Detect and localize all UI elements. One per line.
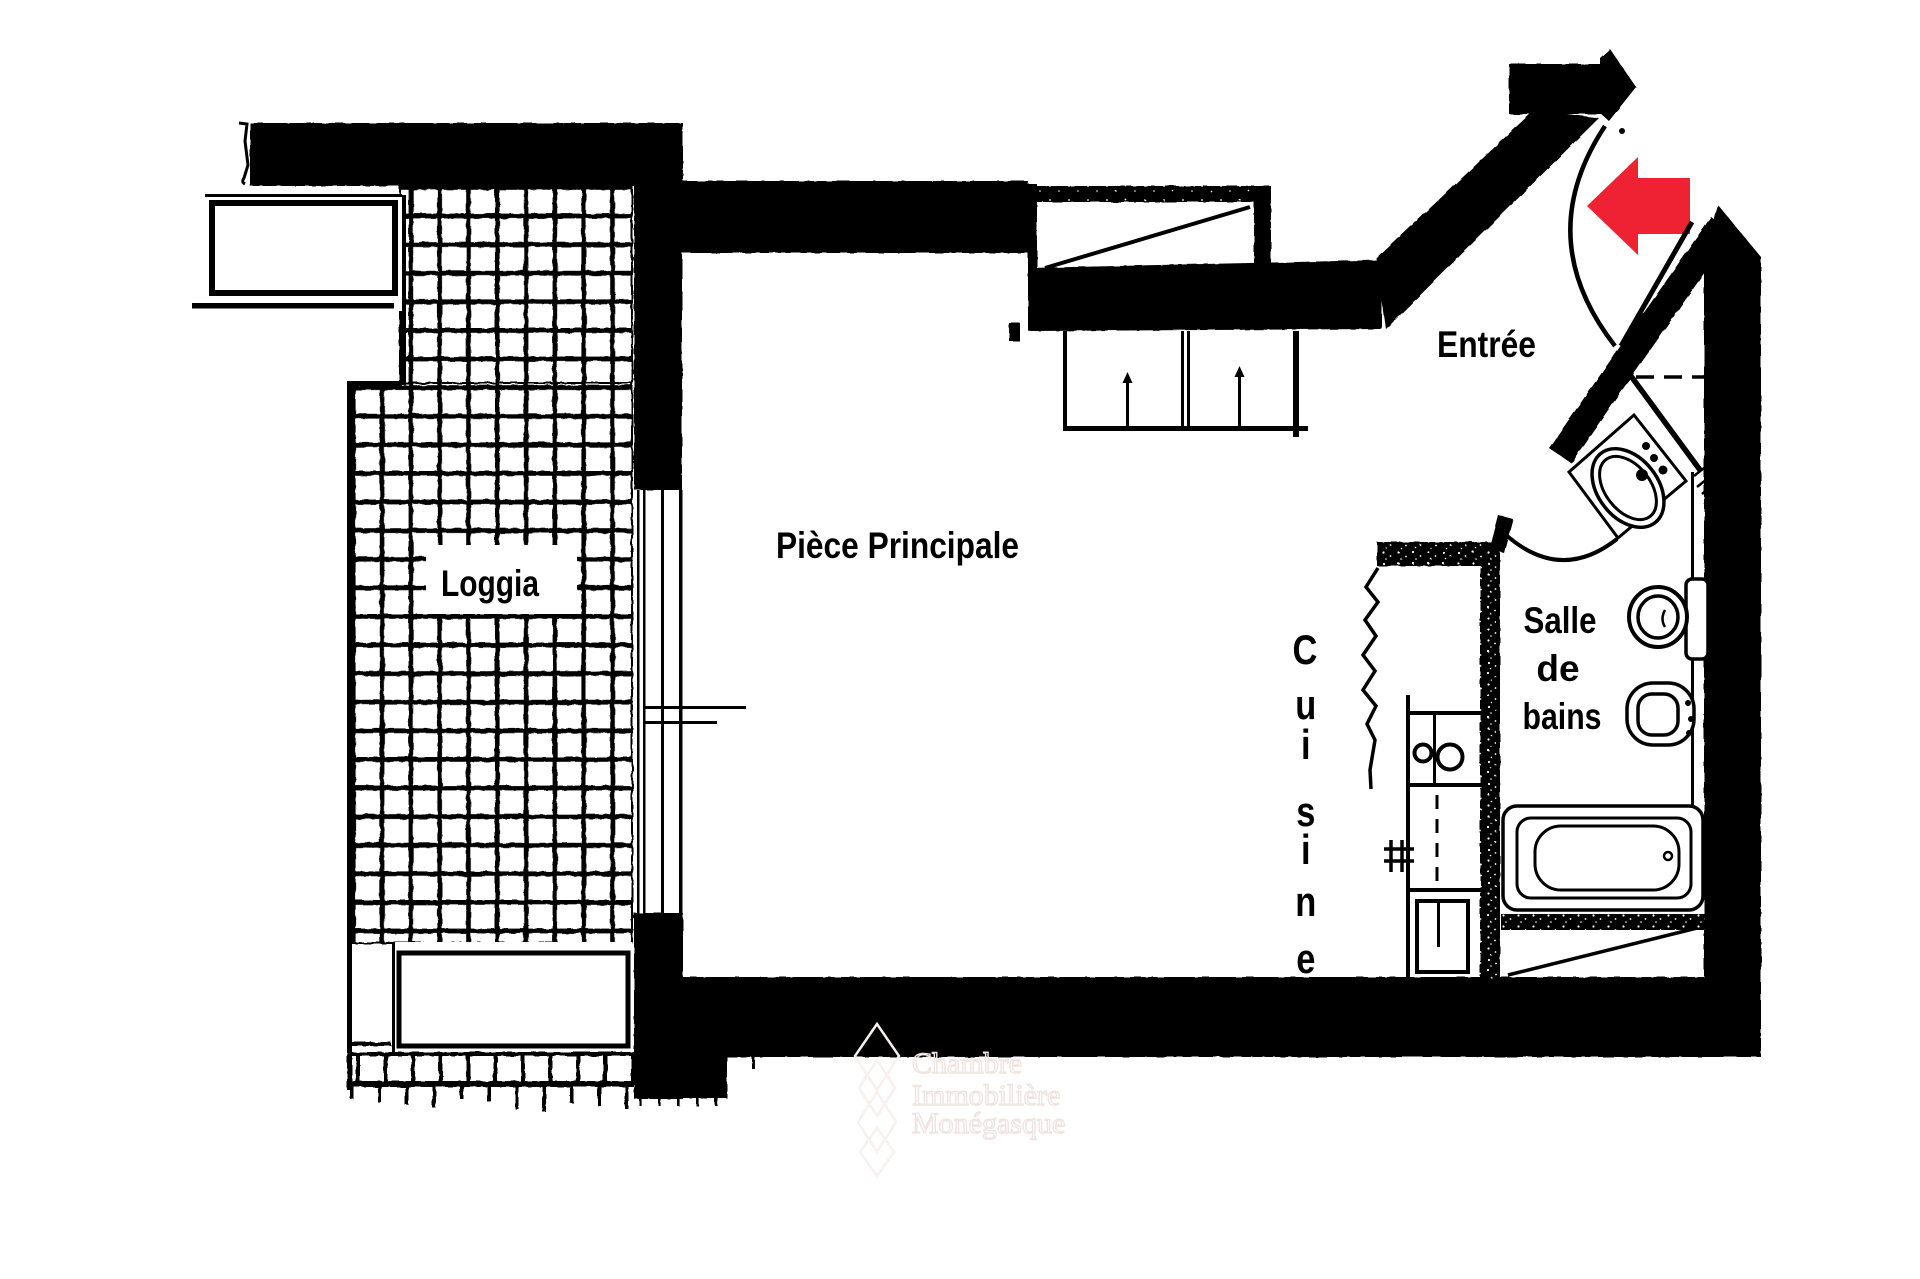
svg-text:i: i: [1301, 722, 1311, 769]
svg-text:de: de: [1536, 648, 1579, 689]
svg-text:Monégasque: Monégasque: [912, 1107, 1065, 1140]
svg-text:C: C: [1293, 627, 1318, 674]
svg-text:i: i: [1301, 827, 1311, 874]
svg-text:e: e: [1296, 936, 1315, 983]
svg-text:Salle: Salle: [1524, 600, 1597, 641]
svg-text:Entrée: Entrée: [1437, 324, 1536, 365]
svg-text:bains: bains: [1523, 696, 1602, 737]
svg-text:Loggia: Loggia: [441, 563, 539, 604]
svg-text:Chambre: Chambre: [912, 1047, 1022, 1080]
svg-text:Pièce Principale: Pièce Principale: [776, 525, 1019, 566]
svg-text:n: n: [1295, 879, 1316, 926]
